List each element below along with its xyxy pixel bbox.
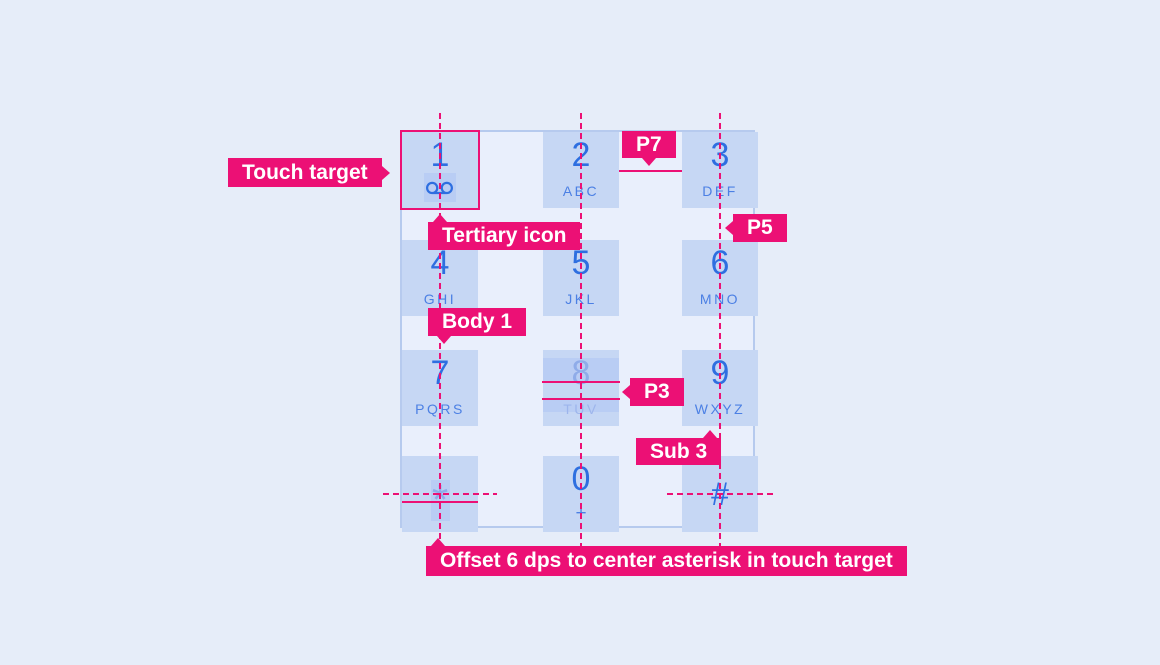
p3-label: P3 [630, 378, 684, 406]
sub3-label: Sub 3 [636, 438, 721, 465]
tertiary-icon-label: Tertiary icon [428, 222, 580, 250]
asterisk-offset-note: Offset 6 dps to center asterisk in touch… [426, 546, 907, 576]
touch-target-outline [400, 130, 480, 210]
column-3-center-guide [719, 113, 721, 546]
p7-measure-line [619, 170, 682, 172]
asterisk-row-center-guide [383, 493, 497, 495]
p5-label: P5 [733, 214, 787, 242]
touch-target-label: Touch target [228, 158, 382, 187]
p7-label: P7 [622, 131, 676, 158]
hash-row-center-guide [667, 493, 773, 495]
dialer-keypad-spec-figure: 1 2 ABC 3 DEF 4 GHI 5 JKL 6 MNO 7 PQRS 8… [0, 0, 1160, 665]
body1-label: Body 1 [428, 308, 526, 336]
column-2-center-guide [580, 113, 582, 546]
